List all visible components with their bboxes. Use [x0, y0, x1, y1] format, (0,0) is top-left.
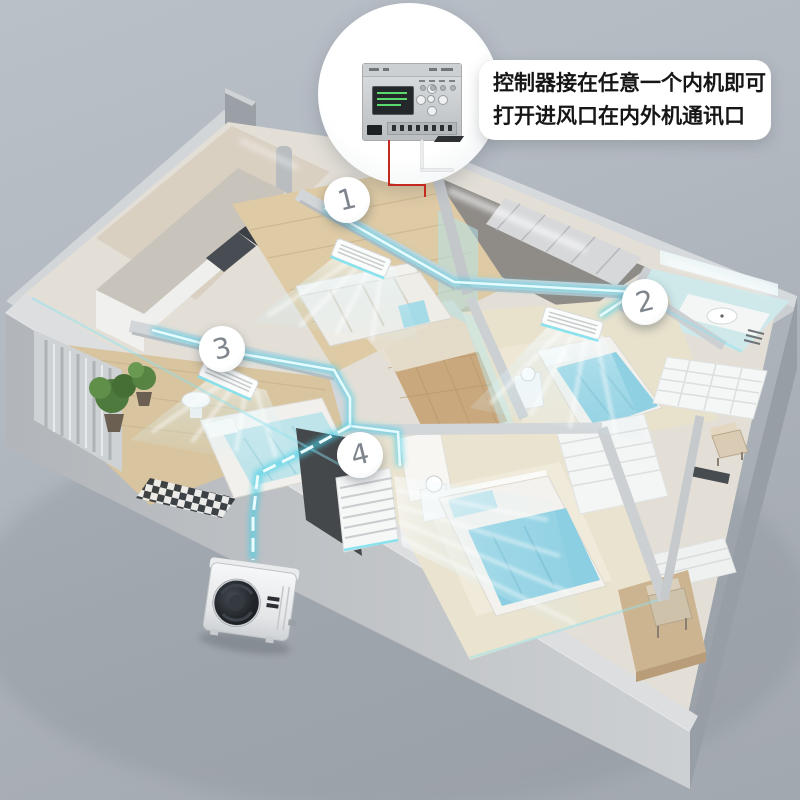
status-led — [420, 85, 426, 91]
controller-top-strip — [363, 64, 461, 77]
controller-terminal-strip — [387, 122, 457, 135]
status-led — [450, 85, 456, 91]
unit-marker-3: 3 — [199, 326, 245, 372]
unit-marker-1: 1 — [324, 177, 370, 223]
led-label — [419, 80, 425, 82]
pipe-stub — [288, 619, 297, 626]
callout-text-line2: 打开进风口在内外机通讯口 — [493, 100, 757, 133]
top-mark — [441, 68, 453, 71]
controller-plug — [367, 125, 382, 135]
status-led — [440, 85, 446, 91]
controller-wire-red — [388, 140, 390, 186]
controller-wire-white — [421, 169, 453, 171]
controller-device — [362, 63, 462, 141]
led-label — [439, 80, 445, 82]
top-mark — [369, 68, 379, 71]
controller-rail-clip — [434, 136, 464, 142]
led-label — [429, 80, 435, 82]
unit-marker-2: 2 — [622, 279, 668, 325]
marker-number: 1 — [335, 184, 359, 215]
hvac-apartment-illustration: 控制器接在任意一个内机即可 打开进风口在内外机通讯口 1 2 3 4 — [0, 0, 800, 800]
unit-marker-4: 4 — [337, 432, 383, 478]
callout-bubble: 控制器接在任意一个内机即可 打开进风口在内外机通讯口 — [479, 60, 771, 140]
led-label — [449, 80, 455, 82]
callout-text-line1: 控制器接在任意一个内机即可 — [493, 67, 757, 100]
controller-wire-white — [421, 140, 423, 171]
controller-wire-red — [424, 184, 426, 197]
marker-number: 4 — [348, 439, 372, 470]
marker-number: 3 — [210, 333, 234, 364]
top-mark — [383, 68, 389, 71]
indoor-unit-4-louver — [336, 468, 398, 552]
controller-wire-red — [388, 184, 426, 186]
status-led — [430, 85, 436, 91]
top-mark — [429, 68, 437, 71]
controller-photo-circle — [318, 3, 500, 185]
marker-number: 2 — [633, 286, 657, 317]
controller-display — [372, 86, 414, 115]
